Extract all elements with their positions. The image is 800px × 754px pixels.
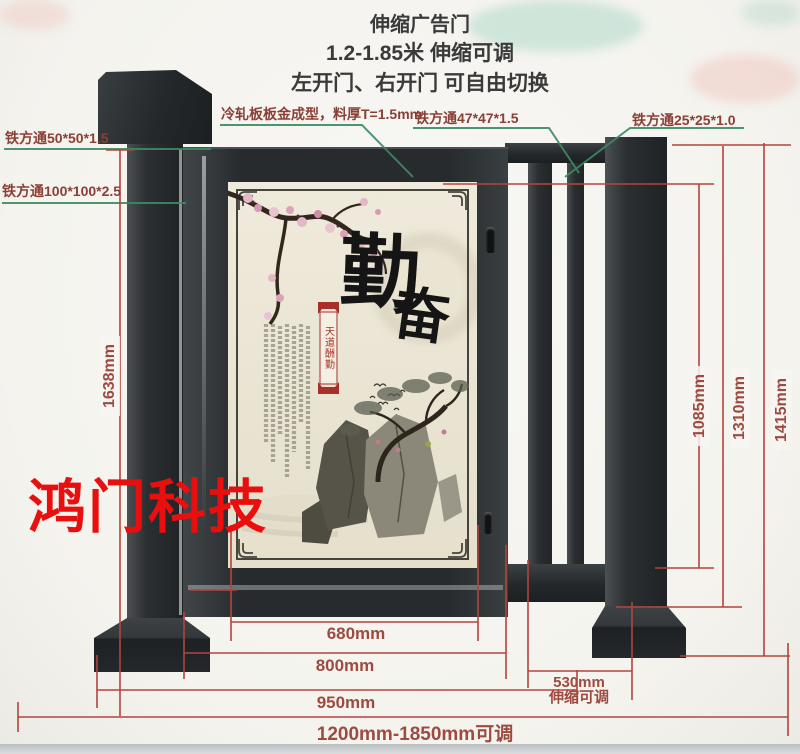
callout-tube-47: 铁方通47*47*1.5 [415,108,519,128]
header-subtitle: 1.2-1.85米 伸缩可调 [40,37,800,67]
callout-tube-100: 铁方通100*100*2.5 [2,181,121,201]
dim-mid-height: 1310mm [730,368,750,448]
dim-extension-note: 伸缩可调 [549,689,609,706]
dim-total-width: 1200mm-1850mm可调 [265,719,565,746]
dim-span-width: 950mm [296,693,396,713]
header-title: 伸缩广告门 [40,8,800,37]
dim-panel-width: 680mm [306,624,406,644]
dim-door-width: 800mm [295,656,395,676]
dim-left-height: 1638mm [100,336,120,416]
header-note: 左开门、右开门 可自由切换 [40,67,800,97]
dim-extension: 530mm 伸缩可调 [527,675,631,705]
callout-tube-25: 铁方通25*25*1.0 [632,110,736,130]
product-diagram: 勤 奋 天道酬勤 [0,0,800,754]
dim-outer-height: 1415mm [772,370,792,450]
red-dimension-lines [18,143,791,736]
watermark-text: 鸿门科技 [28,460,268,544]
callout-tube-50: 铁方通50*50*1.5 [5,128,109,148]
callout-panel-material: 冷轧板板金成型，料厚T=1.5mm [221,104,422,124]
dim-inner-height: 1085mm [690,366,710,446]
